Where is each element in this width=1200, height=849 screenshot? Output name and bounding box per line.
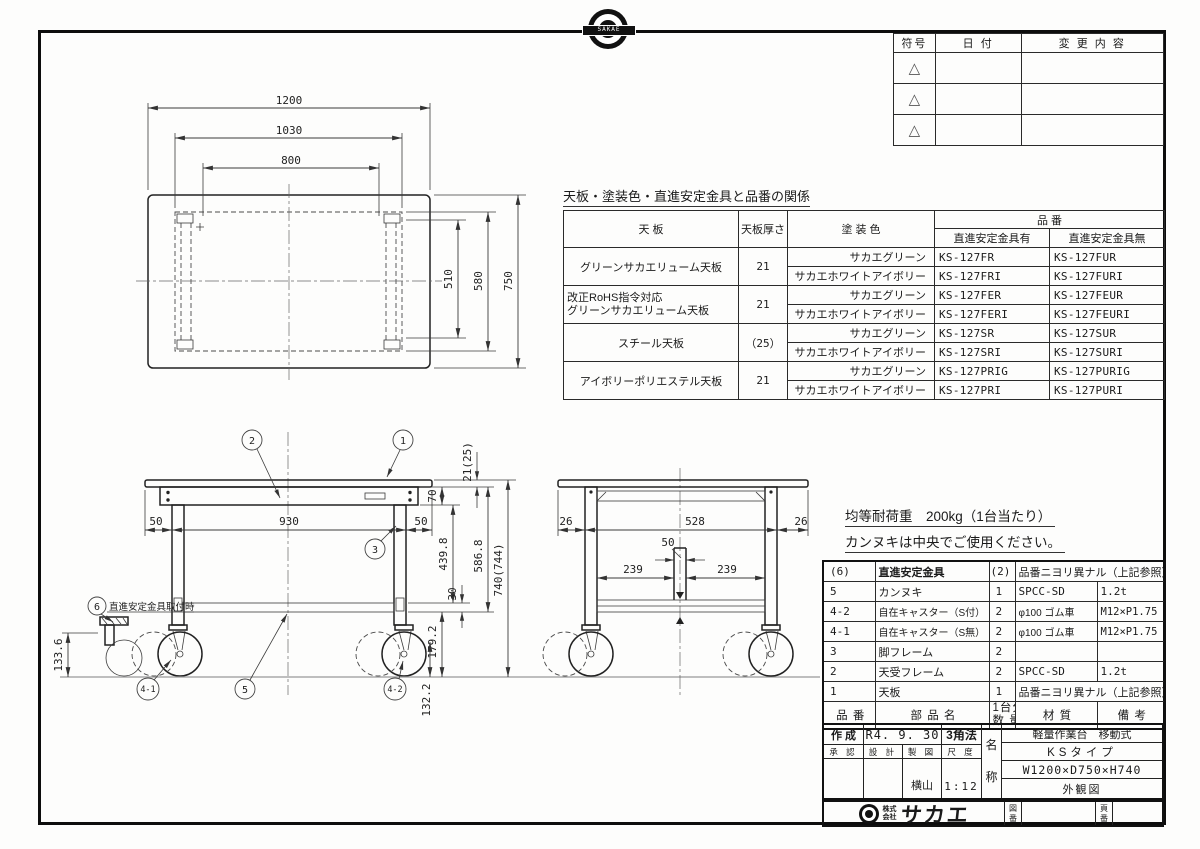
dim-1030: 1030 xyxy=(276,124,303,137)
part-material: 品番ニヨリ異ナル（上記参照） xyxy=(1015,682,1165,702)
dim-50-left: 50 xyxy=(149,515,162,528)
part-name: 天受フレーム xyxy=(875,662,989,682)
dim-439-8: 439.8 xyxy=(437,537,450,570)
name-label: 名称 xyxy=(982,725,1002,798)
part-remark: M12×P1.75 xyxy=(1097,622,1165,642)
revision-col-symbol: 符号 xyxy=(894,34,936,53)
parts-list-table: (6) 直進安定金具 (2) 品番ニヨリ異ナル（上記参照） 5 カンヌキ 1 S… xyxy=(822,560,1166,730)
code-with-cell: KS-127PRI xyxy=(935,381,1050,400)
triangle-icon: △ xyxy=(909,91,921,108)
company-logo-cell: 株式 会社 サカエ xyxy=(824,802,1005,825)
drawn-label: 製 図 xyxy=(903,745,942,759)
callout-2: 2 xyxy=(249,436,255,447)
front-view: 133.6 6 直進安定金具取付時 2 1 3 5 4-1 4-2 xyxy=(52,430,820,717)
callout-4-2: 4-2 xyxy=(387,685,402,695)
company-name: サカエ xyxy=(899,799,971,829)
part-material: φ100 ゴム車 xyxy=(1015,602,1097,622)
name-label-text: 名称 xyxy=(986,730,998,792)
dim-132-2: 132.2 xyxy=(420,683,433,716)
product-size: W1200×D750×H740 xyxy=(1002,761,1162,779)
part-qty: 2 xyxy=(989,662,1015,682)
code-with-cell: KS-127PRIG xyxy=(935,362,1050,381)
header-hinban: 品 番 xyxy=(935,211,1165,229)
dim-510: 510 xyxy=(442,269,455,289)
top-view: 1200 1030 800 510 580 750 xyxy=(136,94,526,380)
part-name: 脚フレーム xyxy=(875,642,989,662)
cad-drawing: 1200 1030 800 510 580 750 xyxy=(0,0,840,760)
revision-table-grid: 符号 日 付 変 更 内 容 △ △ △ xyxy=(893,33,1164,146)
scale-label: 尺 度 xyxy=(942,745,982,759)
created-date: R4. 9. 30 xyxy=(864,725,942,745)
part-name: 自在キャスター（S無） xyxy=(875,622,989,642)
company-strip: 株式 会社 サカエ 図番 頁番 xyxy=(822,800,1164,827)
part-name: 自在キャスター（S付） xyxy=(875,602,989,622)
page-no-value-cell xyxy=(1113,802,1162,825)
code-with-cell: KS-127FRI xyxy=(935,267,1050,286)
drawing-no-label: 図番 xyxy=(1009,804,1017,823)
part-qty: (2) xyxy=(989,561,1015,582)
projection-method: 3角法 xyxy=(942,725,982,745)
parts-row: 1 天板 1 品番ニヨリ異ナル（上記参照） xyxy=(823,682,1165,702)
revision-col-change: 変 更 内 容 xyxy=(1021,34,1164,53)
side-view: 26 528 26 50 239 239 xyxy=(543,468,808,695)
revision-date-cell xyxy=(935,115,1021,146)
callout-6: 6 xyxy=(94,602,100,613)
triangle-icon: △ xyxy=(909,60,921,77)
part-qty: 1 xyxy=(989,582,1015,602)
dim-800: 800 xyxy=(281,154,301,167)
code-with-cell: KS-127FR xyxy=(935,248,1050,267)
revision-symbol-cell: △ xyxy=(894,84,936,115)
dim-179-2: 179.2 xyxy=(426,625,439,658)
scale-value: 1:12 xyxy=(942,759,982,798)
dim-26-right: 26 xyxy=(794,515,807,528)
approved-value xyxy=(824,759,864,798)
revision-row: △ xyxy=(894,84,1164,115)
code-without-cell: KS-127FUR xyxy=(1050,248,1165,267)
drawing-no-value-cell xyxy=(1022,802,1096,825)
revision-change-cell xyxy=(1021,53,1164,84)
code-with-cell: KS-127FER xyxy=(935,286,1050,305)
code-without-cell: KS-127PURIG xyxy=(1050,362,1165,381)
company-prefix-bottom: 会社 xyxy=(883,814,897,822)
notes-block: 均等耐荷重 200kg（1台当たり） カンヌキは中央でご使用ください。 xyxy=(845,505,1065,553)
footer-qty-line1: 1台分 xyxy=(993,702,1015,715)
code-with-cell: KS-127SR xyxy=(935,324,1050,343)
company-prefix: 株式 会社 xyxy=(883,806,897,821)
sakae-emblem-small-icon xyxy=(859,804,879,824)
revision-change-cell xyxy=(1021,115,1164,146)
part-remark: 1.2t xyxy=(1097,582,1165,602)
dim-26-left: 26 xyxy=(559,515,572,528)
part-remark xyxy=(1097,642,1165,662)
emblem-core xyxy=(865,810,873,818)
dim-586-8: 586.8 xyxy=(472,539,485,572)
code-without-cell: KS-127SUR xyxy=(1050,324,1165,343)
revision-row: △ xyxy=(894,53,1164,84)
part-name: カンヌキ xyxy=(875,582,989,602)
product-name: 軽量作業台 移動式 xyxy=(1002,725,1162,743)
parts-grid: (6) 直進安定金具 (2) 品番ニヨリ異ナル（上記参照） 5 カンヌキ 1 S… xyxy=(822,560,1166,730)
revision-symbol-cell: △ xyxy=(894,53,936,84)
callout-4-1: 4-1 xyxy=(140,685,155,695)
company-logo: 株式 会社 サカエ xyxy=(859,799,970,829)
triangle-icon: △ xyxy=(909,122,921,139)
designed-value xyxy=(864,759,903,798)
revision-change-cell xyxy=(1021,84,1164,115)
parts-row: (6) 直進安定金具 (2) 品番ニヨリ異ナル（上記参照） xyxy=(823,561,1165,582)
dim-30: 30 xyxy=(446,587,459,600)
parts-row: 4-1 自在キャスター（S無） 2 φ100 ゴム車 M12×P1.75 xyxy=(823,622,1165,642)
revision-table: 符号 日 付 変 更 内 容 △ △ △ xyxy=(893,33,1164,146)
dim-750: 750 xyxy=(502,271,515,291)
title-block: 作 成 R4. 9. 30 3角法 承 認 設 計 製 図 尺 度 横山 1:1… xyxy=(822,723,1164,800)
dim-930: 930 xyxy=(279,515,299,528)
drawn-value: 横山 xyxy=(903,759,942,798)
revision-row: △ xyxy=(894,115,1164,146)
parts-row: 3 脚フレーム 2 xyxy=(823,642,1165,662)
code-with-cell: KS-127SRI xyxy=(935,343,1050,362)
part-material: SPCC-SD xyxy=(1015,662,1097,682)
page-no-label: 頁番 xyxy=(1100,804,1108,823)
drawing-sheet: SAKAE 符号 日 付 変 更 内 容 △ △ △ xyxy=(0,0,1200,849)
part-material xyxy=(1015,642,1097,662)
stabilizer-note: 直進安定金具取付時 xyxy=(109,601,195,613)
code-without-cell: KS-127FEUR xyxy=(1050,286,1165,305)
code-without-cell: KS-127FURI xyxy=(1050,267,1165,286)
part-qty: 1 xyxy=(989,682,1015,702)
callout-5: 5 xyxy=(242,685,248,696)
dim-70: 70 xyxy=(426,489,439,502)
part-material: 品番ニヨリ異ナル（上記参照） xyxy=(1015,561,1165,582)
page-no-label-cell: 頁番 xyxy=(1096,802,1113,825)
code-without-cell: KS-127SURI xyxy=(1050,343,1165,362)
product-type: KSタイプ xyxy=(1002,743,1162,761)
dim-740-744: 740(744) xyxy=(492,544,505,597)
part-material: SPCC-SD xyxy=(1015,582,1097,602)
callout-3: 3 xyxy=(372,545,378,556)
code-without-cell: KS-127PURI xyxy=(1050,381,1165,400)
dim-239-left: 239 xyxy=(623,563,643,576)
revision-date-cell xyxy=(935,53,1021,84)
dim-133-6: 133.6 xyxy=(52,638,65,671)
company-prefix-top: 株式 xyxy=(883,806,897,814)
dim-580: 580 xyxy=(472,271,485,291)
parts-row: 4-2 自在キャスター（S付） 2 φ100 ゴム車 M12×P1.75 xyxy=(823,602,1165,622)
part-qty: 2 xyxy=(989,622,1015,642)
dim-50-right: 50 xyxy=(414,515,427,528)
drawing-no-label-cell: 図番 xyxy=(1005,802,1022,825)
callout-1: 1 xyxy=(400,436,406,447)
dim-50-center: 50 xyxy=(661,536,674,549)
parts-row: 2 天受フレーム 2 SPCC-SD 1.2t xyxy=(823,662,1165,682)
view-type: 外観図 xyxy=(1002,779,1162,798)
part-name: 天板 xyxy=(875,682,989,702)
header-with-stabilizer: 直進安定金具有 xyxy=(935,229,1050,248)
revision-col-date: 日 付 xyxy=(935,34,1021,53)
part-remark: 1.2t xyxy=(1097,662,1165,682)
load-capacity-note: 均等耐荷重 200kg（1台当たり） xyxy=(845,505,1055,527)
dim-21-25: 21(25) xyxy=(461,442,474,482)
usage-note: カンヌキは中央でご使用ください。 xyxy=(845,531,1065,553)
dim-1200: 1200 xyxy=(276,94,303,107)
dim-528: 528 xyxy=(685,515,705,528)
code-with-cell: KS-127FERI xyxy=(935,305,1050,324)
parts-row: 5 カンヌキ 1 SPCC-SD 1.2t xyxy=(823,582,1165,602)
part-name: 直進安定金具 xyxy=(875,561,989,582)
code-without-cell: KS-127FEURI xyxy=(1050,305,1165,324)
part-material: φ100 ゴム車 xyxy=(1015,622,1097,642)
dim-239-right: 239 xyxy=(717,563,737,576)
part-qty: 2 xyxy=(989,642,1015,662)
revision-date-cell xyxy=(935,84,1021,115)
revision-symbol-cell: △ xyxy=(894,115,936,146)
part-remark: M12×P1.75 xyxy=(1097,602,1165,622)
designed-label: 設 計 xyxy=(864,745,903,759)
revision-header-row: 符号 日 付 変 更 内 容 xyxy=(894,34,1164,53)
part-qty: 2 xyxy=(989,602,1015,622)
header-without-stabilizer: 直進安定金具無 xyxy=(1050,229,1165,248)
